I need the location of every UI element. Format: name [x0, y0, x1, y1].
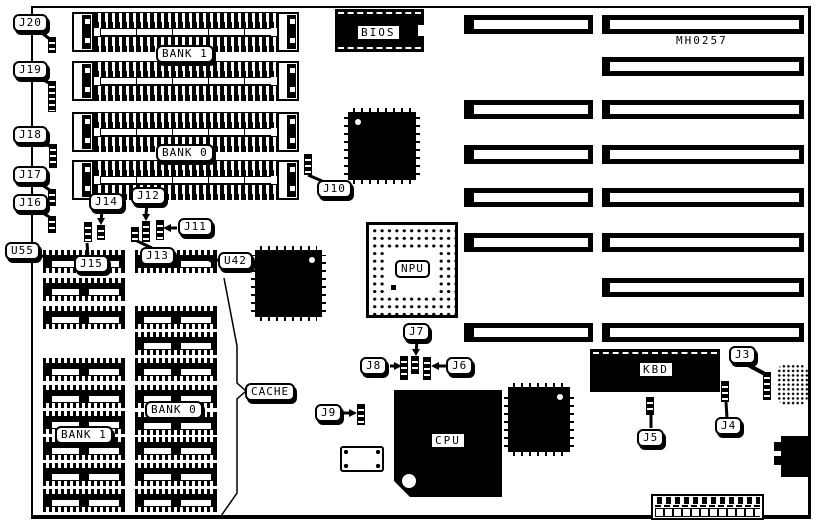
kbd-label: KBD [639, 362, 673, 377]
callout-u42: U42 [218, 252, 253, 270]
bios-label: BIOS [357, 25, 400, 40]
callout-j13: J13 [140, 247, 175, 265]
callout-j9: J9 [315, 404, 342, 422]
callout-u55: U55 [5, 242, 40, 260]
callout-j20: J20 [13, 14, 48, 32]
callout-j19: J19 [13, 61, 48, 79]
callout-j14: J14 [89, 193, 124, 211]
power-connector-sockets [655, 508, 760, 517]
callout-j10: J10 [317, 180, 352, 198]
callout-j6: J6 [446, 357, 473, 375]
callout-j8: J8 [360, 357, 387, 375]
npu-label: NPU [395, 260, 430, 278]
motherboard-diagram: BANK 1 BANK 0 BIOS MH0257 NPU [0, 0, 816, 527]
callout-j7: J7 [403, 323, 430, 341]
keyboard-din-connector [781, 436, 811, 477]
bank0-simm-label: BANK 0 [156, 144, 214, 162]
power-connector [651, 494, 764, 520]
callout-j4: J4 [715, 417, 742, 435]
cache-brace [221, 278, 246, 516]
power-connector-dashes [655, 505, 760, 507]
callout-j3: J3 [729, 346, 756, 364]
cache-bank0-label: BANK 0 [145, 401, 203, 419]
callout-j15: J15 [74, 255, 109, 273]
power-connector-pins [655, 497, 760, 504]
cpu-label: CPU [432, 434, 464, 447]
callout-j18: J18 [13, 126, 48, 144]
callout-j5: J5 [637, 429, 664, 447]
callout-j16: J16 [13, 194, 48, 212]
callout-j12: J12 [131, 187, 166, 205]
cache-bank1-label: BANK 1 [55, 426, 113, 444]
callout-j11: J11 [178, 218, 213, 236]
callout-j17: J17 [13, 166, 48, 184]
bank1-simm-label: BANK 1 [156, 45, 214, 63]
cache-label: CACHE [245, 383, 295, 401]
